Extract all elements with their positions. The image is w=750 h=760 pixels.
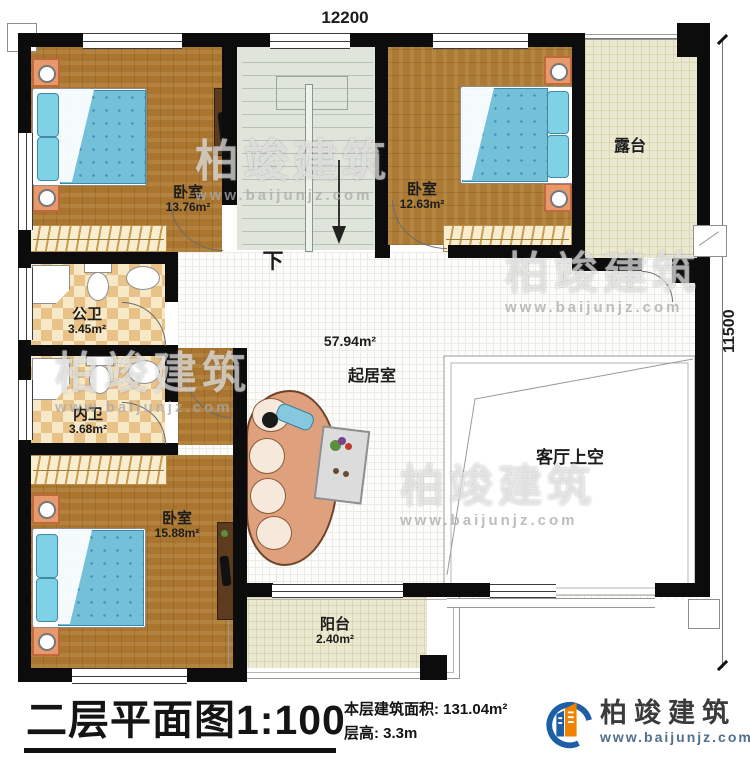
stairs-arrow-tail [338, 160, 340, 226]
window-bedroom-tl [83, 33, 182, 49]
company-logo: 柏竣建筑 www.baijunjz.com [540, 690, 746, 754]
pillow [37, 137, 59, 181]
room-area: 3.68m² [48, 423, 128, 437]
pillow [37, 93, 59, 137]
sink [128, 360, 160, 384]
stairs-down-arrow [332, 226, 346, 244]
table-cup-icon [333, 468, 339, 474]
balcony-sliding-door [272, 584, 403, 598]
room-label-bedroom-tl: 卧室 13.76m² [148, 184, 228, 215]
nightstand [544, 183, 572, 212]
floor-area-text: 本层建筑面积: 131.04m² [344, 698, 507, 719]
dimension-tick [717, 660, 728, 671]
room-label-void: 客厅上空 [515, 448, 625, 468]
wardrobe-tl [30, 225, 167, 252]
plan-title: 二层平面图1:100 [26, 686, 346, 746]
plan-title-text: 二层平面图 [26, 697, 236, 743]
sofa-cushion [256, 516, 292, 550]
room-name: 露台 [600, 138, 660, 156]
room-label-balcony: 阳台 2.40m² [295, 616, 375, 647]
toilet-bowl [89, 365, 111, 394]
window-bath-public [18, 268, 33, 340]
person-head-icon [262, 412, 278, 428]
wall-mid-1 [18, 252, 178, 264]
wall-bath-right-1 [165, 252, 178, 302]
window-bedroom-bl [72, 668, 187, 684]
toilet-bowl [87, 272, 109, 301]
floor-height-text: 层高: 3.3m [344, 722, 417, 743]
wall-bedroom-bl-right [233, 348, 247, 682]
room-name: 卧室 [148, 184, 228, 201]
stairs-down-label: 下 [258, 250, 288, 274]
living-area-value: 57.94m² [305, 333, 395, 349]
room-label-bath-private: 内卫 3.68m² [48, 406, 128, 437]
room-name: 阳台 [295, 616, 375, 633]
nightstand [32, 626, 60, 656]
room-name: 卧室 [137, 510, 217, 527]
room-area: 12.63m² [382, 198, 462, 212]
wall-bath-right-2 [165, 345, 178, 402]
nightstand [32, 182, 60, 212]
window-bedroom-tr [433, 33, 528, 49]
wall-bedroom-tl-right [222, 47, 237, 205]
terrace-top-rail [585, 34, 677, 40]
wall-terrace-bottom [572, 258, 642, 271]
stairs-rail [305, 84, 313, 252]
room-label-terrace: 露台 [600, 138, 660, 156]
company-website: www.baijunjz.com [600, 729, 750, 745]
wall-bedroom-tr-bottom-b [448, 245, 585, 258]
plan-scale: 1:100 [236, 697, 346, 743]
room-label-bedroom-tr: 卧室 12.63m² [382, 181, 462, 212]
window-bedroom-tl-left [18, 133, 33, 230]
pillar-balcony [420, 655, 447, 680]
dimension-width-label: 12200 [310, 8, 380, 28]
pillow [36, 578, 58, 622]
room-area: 2.40m² [295, 633, 375, 647]
room-area: 15.88m² [137, 527, 217, 541]
sofa-cushion [250, 478, 286, 514]
room-label-bedroom-bl: 卧室 15.88m² [137, 510, 217, 541]
room-label-bath-public: 公卫 3.45m² [47, 306, 127, 337]
window-balcony-right [490, 584, 556, 598]
exterior-box-bottom-right [688, 599, 720, 629]
window-bath-private [18, 380, 33, 440]
sofa-cushion [249, 438, 285, 474]
wall-left [18, 33, 31, 682]
pillow [547, 91, 569, 134]
table-flowers-icon [345, 443, 352, 450]
floorplan-canvas: 卧室 13.76m² 卧室 12.63m² 卧室 15.88m² 公卫 3.45… [0, 0, 750, 760]
plant-icon [221, 530, 228, 537]
wall-bath-divider [18, 345, 178, 356]
dimension-height-label: 11500 [721, 301, 739, 361]
living-void-outline [443, 355, 697, 597]
room-name: 内卫 [48, 406, 128, 423]
wall-void-bottom [655, 583, 710, 597]
wall-terrace-left [572, 33, 585, 271]
nightstand [32, 494, 60, 524]
pillow [547, 135, 569, 178]
room-name: 卧室 [382, 181, 462, 198]
wall-bedroom-tr-bottom-a [375, 245, 390, 258]
wall-balcony-top-b [403, 583, 490, 597]
window-stairs [270, 33, 350, 49]
wall-bath-bottom [18, 443, 178, 455]
pillar-top-right [677, 23, 710, 57]
pillow [36, 534, 58, 578]
wall-right-lower [695, 263, 710, 597]
title-underline [24, 748, 336, 753]
company-name: 柏竣建筑 [600, 699, 750, 729]
nightstand [32, 58, 60, 87]
nightstand [544, 56, 572, 85]
terrace-exterior-door [693, 225, 727, 257]
room-name: 公卫 [47, 306, 127, 323]
room-area: 13.76m² [148, 201, 228, 215]
wardrobe-bl [30, 455, 167, 485]
room-label-living: 起居室 [332, 368, 412, 386]
wall-stairs-right [375, 47, 388, 245]
void-bottom-rail [447, 598, 655, 608]
table-cup-icon [343, 471, 349, 477]
room-area: 3.45m² [47, 323, 127, 337]
wall-balcony-top-a [243, 583, 273, 597]
sink [126, 266, 160, 290]
company-logo-icon [540, 695, 592, 749]
